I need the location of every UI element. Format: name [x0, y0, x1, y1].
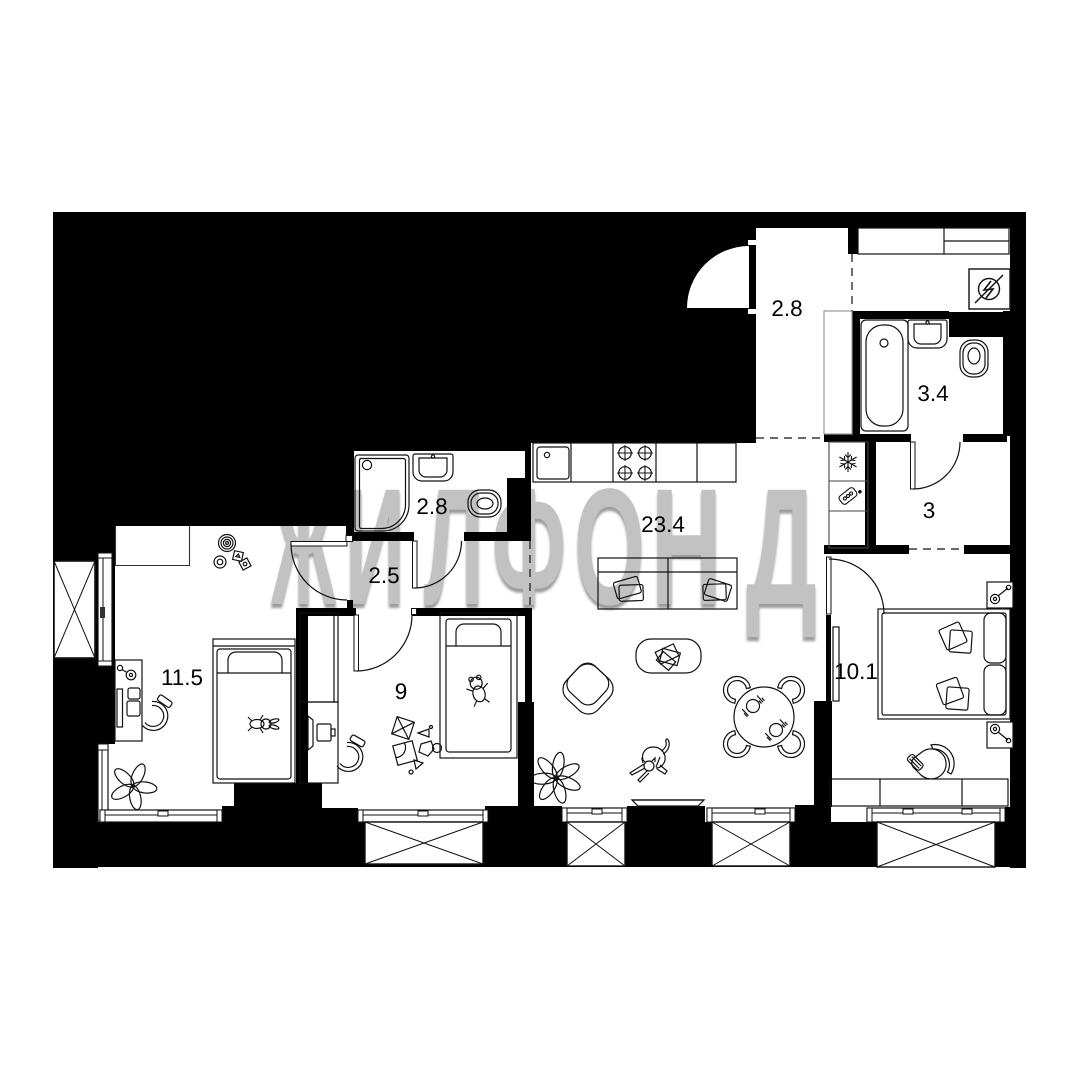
svg-text:О: О [574, 455, 645, 640]
svg-text:10.1: 10.1 [834, 659, 878, 684]
svg-text:2.8: 2.8 [771, 296, 802, 321]
svg-text:3: 3 [923, 498, 936, 523]
svg-text:Н: Н [651, 455, 722, 640]
svg-text:11.5: 11.5 [161, 665, 203, 690]
svg-text:3.4: 3.4 [917, 381, 948, 406]
svg-text:23.4: 23.4 [641, 512, 685, 537]
svg-text:Д: Д [746, 455, 817, 640]
svg-text:9: 9 [395, 679, 408, 704]
svg-text:2.5: 2.5 [368, 563, 399, 588]
svg-text:2.8: 2.8 [416, 494, 447, 519]
